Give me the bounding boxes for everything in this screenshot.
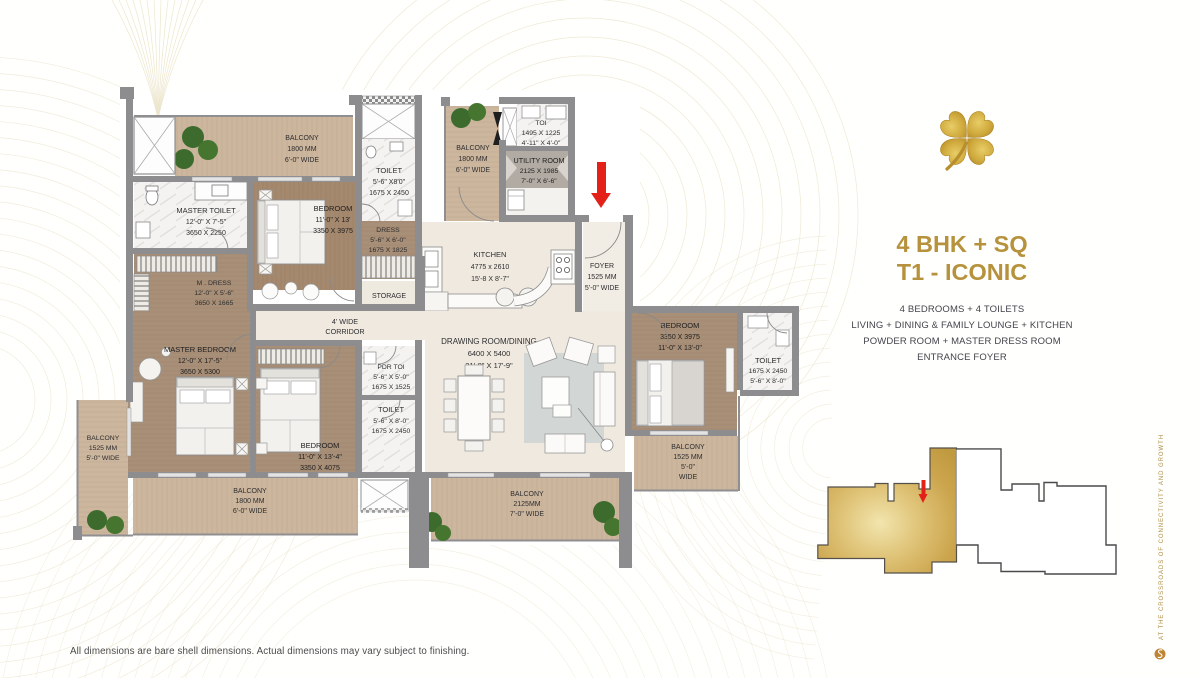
svg-text:BALCONY: BALCONY xyxy=(510,491,544,498)
svg-text:6'-0" WIDE: 6'-0" WIDE xyxy=(285,157,319,164)
svg-text:6400 X 5400: 6400 X 5400 xyxy=(468,349,511,358)
svg-text:4' WIDE: 4' WIDE xyxy=(332,317,358,326)
svg-text:1525 MM: 1525 MM xyxy=(89,445,118,452)
svg-text:5'-0": 5'-0" xyxy=(681,464,695,471)
svg-text:2125MM: 2125MM xyxy=(513,501,540,508)
svg-text:1525 MM: 1525 MM xyxy=(587,274,616,281)
svg-text:11'-0" X 13'-0": 11'-0" X 13'-0" xyxy=(658,345,702,352)
svg-text:TOILET: TOILET xyxy=(755,356,782,365)
svg-text:3350 X 3975: 3350 X 3975 xyxy=(313,228,353,235)
svg-text:3350 X 3975: 3350 X 3975 xyxy=(660,334,700,341)
svg-text:4775 x 2610: 4775 x 2610 xyxy=(471,264,510,271)
svg-text:BALCONY: BALCONY xyxy=(87,435,120,442)
svg-text:6'-0" WIDE: 6'-0" WIDE xyxy=(233,508,267,515)
svg-text:1525 MM: 1525 MM xyxy=(673,454,702,461)
svg-text:ENTRANCE FOYER: ENTRANCE FOYER xyxy=(917,352,1007,363)
svg-text:POWDER ROOM + MASTER DRESS ROO: POWDER ROOM + MASTER DRESS ROOM xyxy=(863,336,1061,347)
svg-text:5'-6" X 8'-0": 5'-6" X 8'-0" xyxy=(750,378,786,385)
svg-text:5'-6" X 8'-0": 5'-6" X 8'-0" xyxy=(373,418,409,425)
svg-text:LIVING + DINING & FAMILY LOUNG: LIVING + DINING & FAMILY LOUNGE + KITCHE… xyxy=(851,320,1072,331)
svg-text:BALCONY: BALCONY xyxy=(456,145,490,152)
svg-text:3650 X 1665: 3650 X 1665 xyxy=(195,300,234,307)
svg-text:PDR TOI: PDR TOI xyxy=(377,364,404,371)
svg-text:4 BEDROOMS + 4 TOILETS: 4 BEDROOMS + 4 TOILETS xyxy=(900,304,1025,315)
svg-text:DRAWING ROOM/DINING: DRAWING ROOM/DINING xyxy=(441,337,537,346)
svg-text:7'-0" WIDE: 7'-0" WIDE xyxy=(510,511,544,518)
svg-text:BEDROOM: BEDROOM xyxy=(314,204,353,213)
svg-text:T1 - ICONIC: T1 - ICONIC xyxy=(897,259,1028,285)
svg-text:5'-6" X 6'-0": 5'-6" X 6'-0" xyxy=(370,237,406,244)
svg-text:DRESS: DRESS xyxy=(376,227,400,234)
svg-text:1675 X 1525: 1675 X 1525 xyxy=(372,384,411,391)
svg-text:5'-0" WIDE: 5'-0" WIDE xyxy=(585,285,619,292)
svg-text:1675 X 1825: 1675 X 1825 xyxy=(369,247,408,254)
svg-text:TOILET: TOILET xyxy=(376,166,403,175)
svg-text:1800 MM: 1800 MM xyxy=(458,156,487,163)
svg-text:12'-0" X 7'-5": 12'-0" X 7'-5" xyxy=(186,219,227,226)
svg-text:MASTER TOILET: MASTER TOILET xyxy=(176,206,236,215)
svg-text:BALCONY: BALCONY xyxy=(671,444,705,451)
svg-text:5'-6" X8'0": 5'-6" X8'0" xyxy=(373,179,406,186)
svg-text:AT THE CROSSROADS OF CONNECTIV: AT THE CROSSROADS OF CONNECTIVITY AND GR… xyxy=(1159,434,1165,640)
svg-text:TOI: TOI xyxy=(535,120,546,127)
svg-text:1675 X 2450: 1675 X 2450 xyxy=(372,428,411,435)
svg-text:MASTER BEDROOM: MASTER BEDROOM xyxy=(164,345,236,354)
svg-text:1800 MM: 1800 MM xyxy=(235,498,264,505)
svg-text:5'-0" WIDE: 5'-0" WIDE xyxy=(86,455,120,462)
svg-text:1675 X 2450: 1675 X 2450 xyxy=(369,190,409,197)
svg-text:3650 X 5300: 3650 X 5300 xyxy=(180,369,220,376)
svg-text:1495 X 1225: 1495 X 1225 xyxy=(522,130,561,137)
svg-text:BEDROOM: BEDROOM xyxy=(301,441,340,450)
svg-text:5'-6" X 5'-0": 5'-6" X 5'-0" xyxy=(373,374,409,381)
svg-text:BALCONY: BALCONY xyxy=(233,488,267,495)
svg-text:2125 X 1985: 2125 X 1985 xyxy=(520,168,559,175)
svg-text:FOYER: FOYER xyxy=(590,263,614,270)
svg-text:WIDE: WIDE xyxy=(679,474,698,481)
svg-text:UTILITY ROOM: UTILITY ROOM xyxy=(514,156,565,165)
svg-text:BALCONY: BALCONY xyxy=(285,135,319,142)
svg-text:11'-0" X 13'-4": 11'-0" X 13'-4" xyxy=(298,454,342,461)
svg-text:12'-0" X 5'-6": 12'-0" X 5'-6" xyxy=(194,290,234,297)
svg-text:M . DRESS: M . DRESS xyxy=(197,280,232,287)
svg-text:15'-8 X 8'-7": 15'-8 X 8'-7" xyxy=(471,276,509,283)
svg-text:12'-0" X 17'-5": 12'-0" X 17'-5" xyxy=(178,358,223,365)
svg-text:All dimensions are bare shell: All dimensions are bare shell dimensions… xyxy=(70,646,469,657)
svg-text:6'-0" WIDE: 6'-0" WIDE xyxy=(456,167,490,174)
svg-text:CORRIDOR: CORRIDOR xyxy=(325,327,364,336)
svg-text:1675 X 2450: 1675 X 2450 xyxy=(749,368,788,375)
svg-text:4'-11" X 4'-0": 4'-11" X 4'-0" xyxy=(522,140,561,147)
svg-text:TOILET: TOILET xyxy=(378,405,405,414)
svg-text:BEDROOM: BEDROOM xyxy=(661,321,700,330)
svg-text:STORAGE: STORAGE xyxy=(372,293,406,300)
svg-text:KITCHEN: KITCHEN xyxy=(474,250,507,259)
svg-text:11'-0" X 13': 11'-0" X 13' xyxy=(316,217,351,224)
svg-text:3350 X 4075: 3350 X 4075 xyxy=(300,465,340,472)
svg-text:7'-0" X 6'-6": 7'-0" X 6'-6" xyxy=(521,178,557,185)
svg-text:4 BHK + SQ: 4 BHK + SQ xyxy=(896,231,1027,257)
svg-text:1800 MM: 1800 MM xyxy=(287,146,316,153)
